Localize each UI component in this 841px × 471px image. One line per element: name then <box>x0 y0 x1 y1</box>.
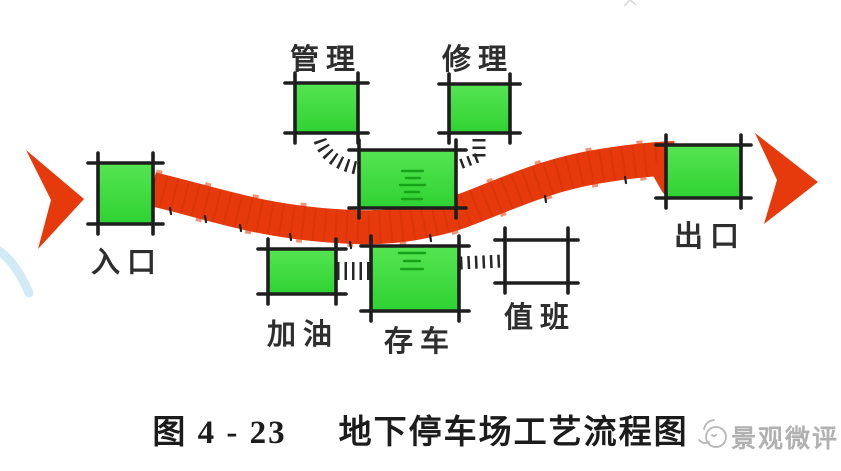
background-swoosh <box>0 248 29 293</box>
caption-title: 地下停车场工艺流程图 <box>339 415 689 451</box>
label-entrance: 入口 <box>87 239 167 281</box>
label-exit: 出口 <box>670 213 750 255</box>
management-box <box>285 73 368 143</box>
connector-repair-hall-2 <box>461 156 482 164</box>
label-parking: 存车 <box>380 318 460 360</box>
label-duty: 值班 <box>500 294 580 336</box>
repair-box <box>439 74 520 143</box>
entrance-box <box>88 153 163 234</box>
right-flow-chevron-icon <box>755 133 818 224</box>
parking-box <box>361 236 469 321</box>
left-flow-chevron-icon <box>26 150 84 249</box>
figure-canvas: 管理 修理 入口 加油 存车 值班 出口 图 4 - 23地下停车场工艺流程图 … <box>0 0 841 471</box>
connector-parking-duty <box>460 261 503 263</box>
refuel-box <box>258 239 346 304</box>
watermark-text: 景观微评 <box>731 419 839 455</box>
caption-number: 图 4 - 23 <box>152 415 286 451</box>
label-refuel: 加油 <box>263 311 343 353</box>
duty-box <box>495 228 578 293</box>
caret-artifact <box>624 0 636 6</box>
watermark-logo-icon <box>692 411 736 455</box>
label-repair: 修理 <box>438 36 518 78</box>
exit-box <box>656 135 751 208</box>
label-management: 管理 <box>286 36 366 78</box>
connector-management-hall <box>320 140 357 168</box>
